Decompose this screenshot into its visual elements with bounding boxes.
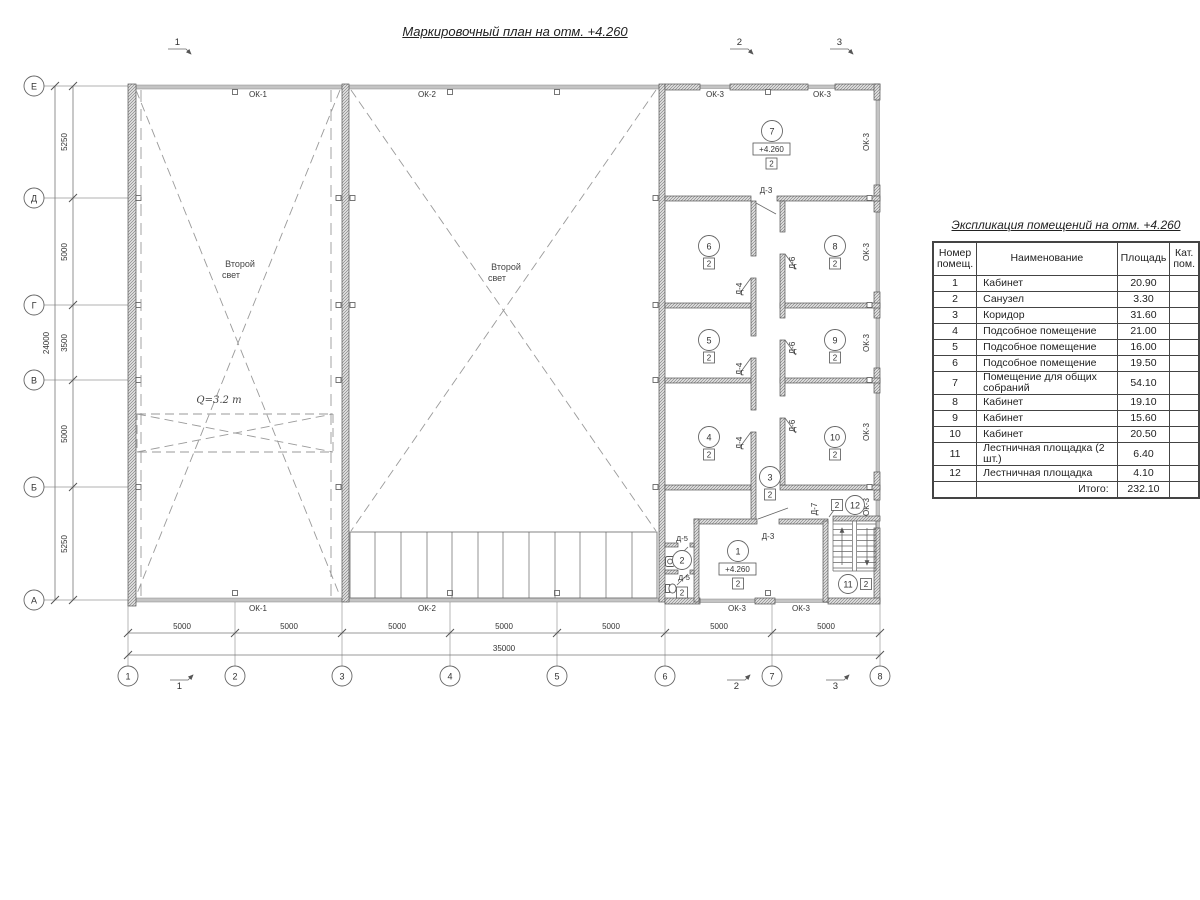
room-1-number: 1 xyxy=(735,547,740,557)
second-light-2-line1: Второй xyxy=(491,262,521,272)
axis-col-6: 6 xyxy=(662,672,667,682)
table-row: 3Коридор31.60 xyxy=(933,308,1199,324)
table-row: 7Помещение для общих собраний54.10 xyxy=(933,372,1199,395)
section-1-top: 1 xyxy=(175,37,180,48)
window-label-ok3-right-3: ОК-3 xyxy=(862,333,871,352)
column-marks xyxy=(136,90,872,596)
room-schedule-table: Номерпомещ. Наименование Площадь Кат.пом… xyxy=(932,241,1200,499)
window-label-ok1-bottom: ОК-1 xyxy=(249,604,268,613)
room-2-number: 2 xyxy=(679,556,684,566)
col-header-name: Наименование xyxy=(977,242,1117,276)
room-10-number: 10 xyxy=(830,433,840,443)
door-label-d6-2: Д-6 xyxy=(788,341,797,354)
floor-plan: 5250 5000 3500 5000 5250 24000 5000 5000… xyxy=(0,0,920,710)
axis-row-e: Е xyxy=(31,82,37,92)
section-3-top: 3 xyxy=(837,37,842,48)
room-9-number: 9 xyxy=(832,336,837,346)
door-label-d6-1: Д-6 xyxy=(788,256,797,269)
table-row: 6Подсобное помещение19.50 xyxy=(933,356,1199,372)
axis-row-b: Б xyxy=(31,483,37,493)
window-label-ok3-right-1: ОК-3 xyxy=(862,132,871,151)
second-light-1-line1: Второй xyxy=(225,259,255,269)
door-label-d5-1: Д-5 xyxy=(676,534,688,543)
section-3-bottom: 3 xyxy=(833,681,838,692)
dim-left-total: 24000 xyxy=(42,331,51,354)
table-row: 9Кабинет15.60 xyxy=(933,411,1199,427)
dim-left-4: 5250 xyxy=(60,535,69,553)
axis-row-a: А xyxy=(31,596,37,606)
table-row: 10Кабинет20.50 xyxy=(933,427,1199,443)
dim-bottom-0: 5000 xyxy=(173,622,191,631)
window-label-ok3-bottom-1: ОК-3 xyxy=(728,604,747,613)
table-row: 11Лестничная площадка (2 шт.)6.40 xyxy=(933,443,1199,466)
room-7-number: 7 xyxy=(769,127,774,137)
room-schedule-title: Экспликация помещений на отм. +4.260 xyxy=(932,218,1200,232)
window-label-ok3-bottom-2: ОК-3 xyxy=(792,604,811,613)
section-2-top: 2 xyxy=(737,37,742,48)
table-row: 4Подсобное помещение21.00 xyxy=(933,324,1199,340)
room-7-cat: 2 xyxy=(769,160,774,169)
door-label-d5-2: Д-5 xyxy=(678,573,690,582)
room-2-cat: 2 xyxy=(680,589,685,598)
window-label-ok1-top: ОК-1 xyxy=(249,90,268,99)
second-light-1-line2: свет xyxy=(222,270,240,280)
door-label-d3-room1: Д-3 xyxy=(762,532,775,541)
table-row: 12Лестничная площадка4.10 xyxy=(933,466,1199,482)
room-1-cat: 2 xyxy=(736,580,741,589)
room-6-cat: 2 xyxy=(707,260,712,269)
table-row: 1Кабинет20.90 xyxy=(933,276,1199,292)
dim-left-3: 5000 xyxy=(60,425,69,443)
hall-2-markings: Второй свет xyxy=(350,90,657,598)
room-11-number: 11 xyxy=(843,580,852,590)
table-row: 8Кабинет19.10 xyxy=(933,395,1199,411)
room-4-number: 4 xyxy=(706,433,711,443)
section-marks: 1 2 3 1 2 3 xyxy=(168,37,853,692)
door-swings xyxy=(677,203,839,585)
window-label-ok3-right-2: ОК-3 xyxy=(862,242,871,261)
room-3-number: 3 xyxy=(767,473,772,483)
second-light-2-line2: свет xyxy=(488,273,506,283)
room-schedule: Экспликация помещений на отм. +4.260 Ном… xyxy=(932,218,1200,499)
hall-1-markings: Второй свет Q=3.2 т xyxy=(136,90,340,596)
axis-row-v: В xyxy=(31,376,37,386)
section-1-bottom: 1 xyxy=(177,681,182,692)
col-header-category: Кат.пом. xyxy=(1170,242,1199,276)
window-label-ok3-top-1: ОК-3 xyxy=(706,90,725,99)
axis-col-5: 5 xyxy=(554,672,559,682)
room-12-cat: 2 xyxy=(835,501,840,510)
dim-bottom-5: 5000 xyxy=(710,622,728,631)
room-8-number: 8 xyxy=(832,242,837,252)
door-label-d6-3: Д-6 xyxy=(788,419,797,432)
door-label-d7: Д-7 xyxy=(810,502,819,515)
dimension-texts: 5250 5000 3500 5000 5250 24000 5000 5000… xyxy=(42,133,835,653)
dim-left-0: 5250 xyxy=(60,133,69,151)
axis-col-8: 8 xyxy=(877,672,882,682)
room-4-cat: 2 xyxy=(707,451,712,460)
drawing-sheet: Маркировочный план на отм. +4.260 5250 5… xyxy=(0,0,1200,900)
axis-row-d: Д xyxy=(31,194,37,204)
door-label-d4-3: Д-4 xyxy=(735,436,744,449)
axis-col-3: 3 xyxy=(339,672,344,682)
window-label-ok3-right-4: ОК-3 xyxy=(862,422,871,441)
toilet-icon xyxy=(669,584,676,593)
room-5-cat: 2 xyxy=(707,354,712,363)
dim-bottom-total: 35000 xyxy=(493,644,516,653)
dim-left-2: 3500 xyxy=(60,334,69,352)
room-3-cat: 2 xyxy=(768,491,773,500)
room-7-elevation: +4.260 xyxy=(759,145,784,154)
door-label-d4-1: Д-4 xyxy=(735,282,744,295)
room-8-cat: 2 xyxy=(833,260,838,269)
window-label-ok3-top-2: ОК-3 xyxy=(813,90,832,99)
col-header-area: Площадь xyxy=(1117,242,1170,276)
crane-capacity-label: Q=3.2 т xyxy=(196,395,241,406)
door-label-d3-top: Д-3 xyxy=(760,186,773,195)
dim-bottom-2: 5000 xyxy=(388,622,406,631)
dim-bottom-4: 5000 xyxy=(602,622,620,631)
axis-row-g: Г xyxy=(32,301,37,311)
axis-col-1: 1 xyxy=(125,672,130,682)
staircase xyxy=(833,521,876,571)
door-label-d4-2: Д-4 xyxy=(735,362,744,375)
axis-col-4: 4 xyxy=(447,672,452,682)
room-5-number: 5 xyxy=(706,336,711,346)
dim-bottom-1: 5000 xyxy=(280,622,298,631)
dim-bottom-6: 5000 xyxy=(817,622,835,631)
room-1-elevation: +4.260 xyxy=(725,565,750,574)
dimension-lines xyxy=(51,82,884,659)
dim-left-1: 5000 xyxy=(60,243,69,261)
table-row: 5Подсобное помещение16.00 xyxy=(933,340,1199,356)
window-label-ok2-bottom: ОК-2 xyxy=(418,604,437,613)
table-total-row: Итого:232.10 xyxy=(933,482,1199,499)
axis-bubbles: Е Д Г В Б А 1 2 3 4 5 6 7 8 xyxy=(24,76,890,686)
room-11-cat: 2 xyxy=(864,580,869,589)
col-header-number: Номерпомещ. xyxy=(933,242,977,276)
room-6-number: 6 xyxy=(706,242,711,252)
room-9-cat: 2 xyxy=(833,354,838,363)
room-10-cat: 2 xyxy=(833,451,838,460)
dim-bottom-3: 5000 xyxy=(495,622,513,631)
section-2-bottom: 2 xyxy=(734,681,739,692)
room-12-number: 12 xyxy=(850,501,860,511)
table-row: 2Санузел3.30 xyxy=(933,292,1199,308)
window-label-ok2-top: ОК-2 xyxy=(418,90,437,99)
axis-col-7: 7 xyxy=(769,672,774,682)
axis-col-2: 2 xyxy=(232,672,237,682)
